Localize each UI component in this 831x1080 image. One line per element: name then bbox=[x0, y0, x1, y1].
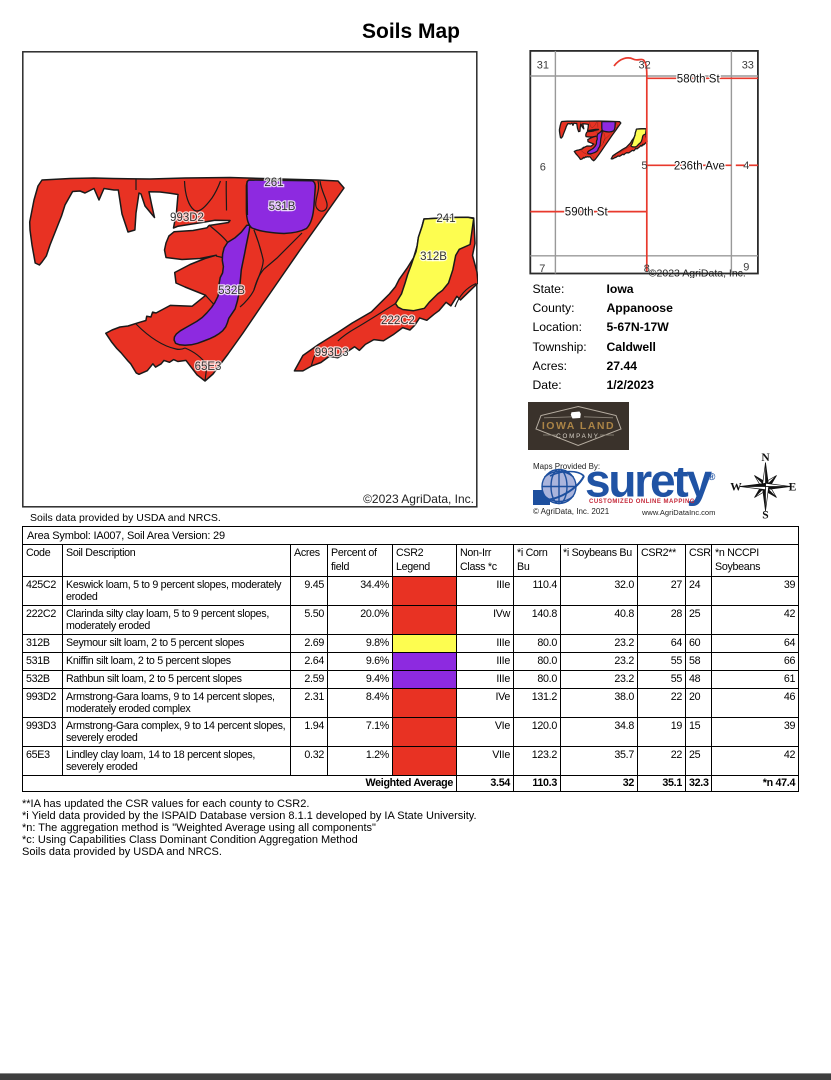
svg-text:N: N bbox=[761, 452, 770, 464]
svg-text:993D3: 993D3 bbox=[315, 347, 349, 359]
svg-text:4: 4 bbox=[743, 160, 749, 172]
svg-text:W: W bbox=[730, 482, 742, 494]
svg-text:32: 32 bbox=[639, 60, 651, 72]
svg-text:993D2: 993D2 bbox=[170, 212, 204, 224]
svg-text:590th St: 590th St bbox=[565, 207, 609, 219]
svg-text:531B: 531B bbox=[269, 201, 296, 213]
svg-text:532B: 532B bbox=[218, 285, 245, 297]
svg-text:®: ® bbox=[708, 472, 716, 483]
svg-text:312B: 312B bbox=[420, 251, 447, 263]
svg-text:261: 261 bbox=[264, 177, 283, 189]
svg-text:©2023 AgriData, Inc.: ©2023 AgriData, Inc. bbox=[649, 268, 746, 279]
svg-text:COMPANY: COMPANY bbox=[556, 433, 599, 440]
svg-text:580th St: 580th St bbox=[677, 73, 721, 85]
svg-text:S: S bbox=[762, 510, 768, 522]
svg-text:236th Ave: 236th Ave bbox=[674, 160, 725, 172]
svg-text:31: 31 bbox=[537, 60, 549, 72]
svg-text:65E3: 65E3 bbox=[195, 361, 222, 373]
svg-text:©2023 AgriData, Inc.: ©2023 AgriData, Inc. bbox=[363, 492, 474, 506]
svg-text:5: 5 bbox=[641, 160, 647, 172]
svg-text:222C2: 222C2 bbox=[381, 315, 415, 327]
svg-text:CUSTOMIZED ONLINE MAPPING: CUSTOMIZED ONLINE MAPPING bbox=[589, 499, 695, 505]
svg-text:E: E bbox=[789, 482, 797, 494]
svg-text:7: 7 bbox=[539, 263, 545, 275]
svg-text:6: 6 bbox=[540, 161, 546, 173]
svg-text:IOWA LAND: IOWA LAND bbox=[542, 420, 615, 432]
svg-text:33: 33 bbox=[742, 60, 754, 72]
svg-text:241: 241 bbox=[436, 213, 455, 225]
